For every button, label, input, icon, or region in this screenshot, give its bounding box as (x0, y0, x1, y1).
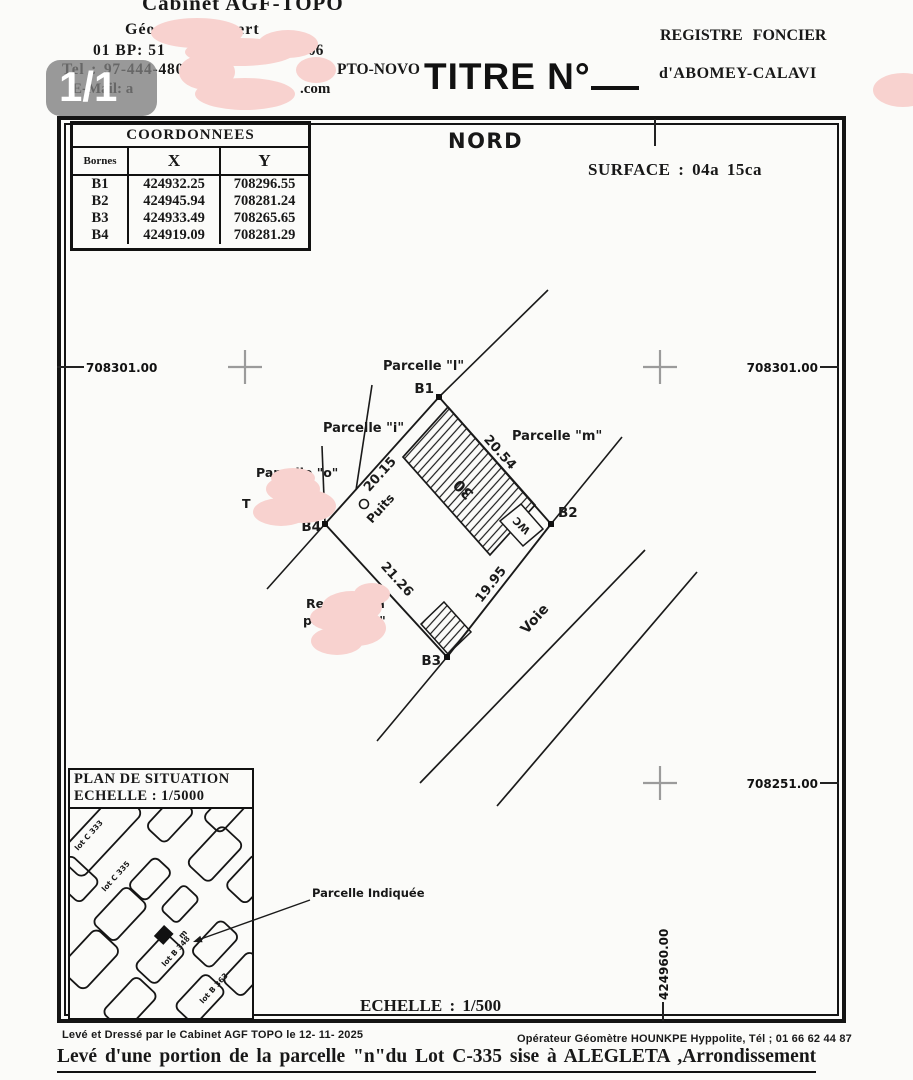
table-cell: B3 (73, 210, 129, 227)
footer-operator-line: Opérateur Géomètre HOUNKPE Hyppolite, Té… (517, 1033, 852, 1045)
table-cell: B4 (73, 227, 129, 244)
page-indicator-text: 1/1 (59, 63, 117, 111)
city-label: PTO-NOVO (337, 61, 420, 79)
table-cell: 424945.94 (129, 193, 221, 210)
table-cell: 708296.55 (221, 176, 308, 193)
title-number-text: TITRE N° (424, 56, 591, 97)
surface-label: SURFACE : 04a 15ca (588, 160, 762, 180)
table-cell: 708281.29 (221, 227, 308, 244)
registre-city-label: d'ABOMEY-CALAVI (659, 65, 817, 83)
situation-plan-header: PLAN DE SITUATION ECHELLE : 1/5000 (70, 770, 252, 809)
coordinates-table-body: B1 424932.25 708296.55 B2 424945.94 7082… (73, 176, 308, 248)
lot-label: lot C 333 (73, 818, 105, 852)
table-cell: B2 (73, 193, 129, 210)
coordinates-table: COORDONNEES Bornes X Y B1 424932.25 7082… (70, 121, 311, 251)
coordinates-table-header-row: Bornes X Y (73, 148, 308, 176)
situation-plan-title: PLAN DE SITUATION (74, 771, 252, 788)
situation-plan-scale: ECHELLE : 1/5000 (74, 788, 252, 805)
title-blank-line (591, 86, 639, 90)
col-header-bornes: Bornes (73, 148, 129, 174)
table-cell: 424933.49 (129, 210, 221, 227)
cabinet-subtitle: Géomètre-Expert (125, 21, 260, 39)
cabinet-name: Cabinet AGF-TOPO (142, 0, 344, 16)
indicated-parcel-callout: Parcelle Indiquée (312, 886, 425, 900)
situation-plan: PLAN DE SITUATION ECHELLE : 1/5000 (68, 768, 254, 1020)
coordinates-table-title: COORDONNEES (73, 124, 308, 148)
table-cell: 424919.09 (129, 227, 221, 244)
redaction-top-right (873, 73, 913, 107)
situation-map: lot C 333 lot C 335 lot B 348 lot B 363 … (70, 809, 252, 1018)
title-number: TITRE N° (424, 56, 639, 98)
table-cell: 708265.65 (221, 210, 308, 227)
table-cell: 708281.24 (221, 193, 308, 210)
footer-surveyor-line: Levé et Dressé par le Cabinet AGF TOPO l… (62, 1029, 363, 1041)
email-right: .com (300, 81, 330, 98)
inset-map-blocks (70, 809, 252, 1018)
north-label: NORD (448, 129, 523, 153)
table-cell: B1 (73, 176, 129, 193)
registre-foncier-label: REGISTRE FONCIER (660, 27, 826, 45)
page-indicator-badge: 1/1 (46, 60, 157, 116)
scanned-survey-document: Cabinet AGF-TOPO Géomètre-Expert 01 BP: … (0, 0, 913, 1080)
col-header-y: Y (221, 148, 308, 174)
table-cell: 424932.25 (129, 176, 221, 193)
bp-address-left: 01 BP: 51 (93, 42, 166, 60)
main-scale-label: ECHELLE : 1/500 (360, 996, 501, 1016)
document-title: Levé d'une portion de la parcelle "n"du … (57, 1046, 816, 1073)
col-header-x: X (129, 148, 221, 174)
bp-address-right: -006 (295, 42, 323, 60)
